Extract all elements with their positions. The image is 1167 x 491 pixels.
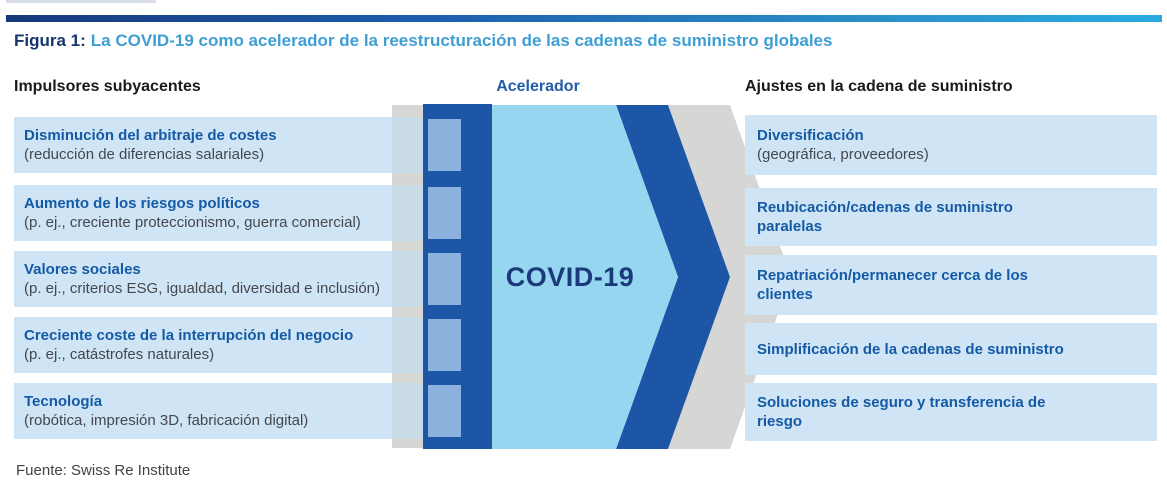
driver-title: Valores sociales (24, 260, 392, 279)
ladder-square (428, 253, 461, 305)
ladder-square (428, 187, 461, 239)
driver-title: Tecnología (24, 392, 392, 411)
adjustment-title: Simplificación de la cadenas de suminist… (757, 340, 1157, 359)
adjustment-box: Soluciones de seguro y transferencia de … (745, 383, 1157, 441)
ladder-step (392, 317, 423, 373)
gradient-rule-bar (6, 15, 1162, 22)
driver-subtitle: (p. ej., criterios ESG, igualdad, divers… (24, 279, 392, 298)
ladder-square (428, 319, 461, 371)
adjustment-box: Simplificación de la cadenas de suminist… (745, 323, 1157, 375)
column-header-drivers: Impulsores subyacentes (14, 78, 201, 96)
adjustment-title: Diversificación (757, 126, 1157, 145)
driver-title: Disminución del arbitraje de costes (24, 126, 392, 145)
driver-box: Valores sociales (p. ej., criterios ESG,… (14, 251, 392, 307)
driver-subtitle: (p. ej., creciente proteccionismo, guerr… (24, 213, 392, 232)
driver-box: Creciente coste de la interrupción del n… (14, 317, 392, 373)
ladder-step (392, 185, 423, 241)
driver-box: Tecnología (robótica, impresión 3D, fabr… (14, 383, 392, 439)
figure-title-text: La COVID-19 como acelerador de la reestr… (91, 31, 833, 50)
figure-label: Figura 1: (14, 31, 86, 50)
adjustment-title: Reubicación/cadenas de suministro parale… (757, 198, 1157, 236)
ladder-step (392, 383, 423, 439)
adjustment-box: Reubicación/cadenas de suministro parale… (745, 188, 1157, 246)
driver-subtitle: (reducción de diferencias salariales) (24, 145, 392, 164)
ladder-square (428, 119, 461, 171)
covid-19-label: COVID-19 (506, 262, 665, 293)
figure-1-diagram: Figura 1:La COVID-19 como acelerador de … (0, 0, 1167, 491)
driver-box: Disminución del arbitraje de costes (red… (14, 117, 392, 173)
column-header-adjustments: Ajustes en la cadena de suministro (745, 78, 1013, 96)
adjustment-box: Repatriación/permanecer cerca de los cli… (745, 255, 1157, 315)
top-edge-remnant (6, 0, 156, 3)
driver-box: Aumento de los riesgos políticos (p. ej.… (14, 185, 392, 241)
adjustment-box: Diversificación (geográfica, proveedores… (745, 115, 1157, 175)
figure-title: Figura 1:La COVID-19 como acelerador de … (14, 31, 832, 51)
driver-title: Aumento de los riesgos políticos (24, 194, 392, 213)
ladder-step (392, 117, 423, 173)
adjustment-title: Soluciones de seguro y transferencia de … (757, 393, 1157, 431)
column-header-accelerator: Acelerador (423, 78, 653, 96)
driver-title: Creciente coste de la interrupción del n… (24, 326, 392, 345)
source-note: Fuente: Swiss Re Institute (16, 462, 190, 479)
ladder-square (428, 385, 461, 437)
driver-subtitle: (p. ej., catástrofes naturales) (24, 345, 392, 364)
adjustment-title: Repatriación/permanecer cerca de los cli… (757, 266, 1157, 304)
ladder-step (392, 251, 423, 307)
adjustment-subtitle: (geográfica, proveedores) (757, 145, 1157, 164)
driver-subtitle: (robótica, impresión 3D, fabricación dig… (24, 411, 392, 430)
